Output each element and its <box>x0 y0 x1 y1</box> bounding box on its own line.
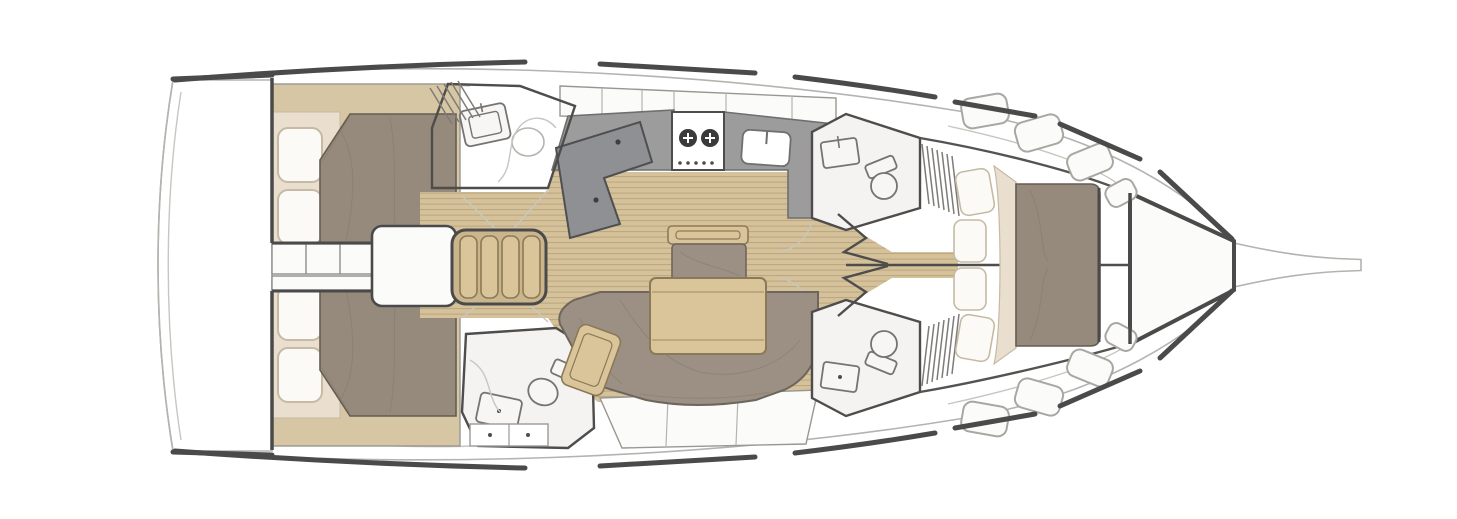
head-forward-port <box>812 114 920 230</box>
pillow <box>278 348 322 402</box>
pillow <box>278 286 322 340</box>
head-forward-starboard <box>812 300 920 416</box>
yacht-floor-plan-canvas <box>0 0 1457 519</box>
saloon-bench <box>668 226 748 282</box>
bowsprit <box>1234 243 1361 287</box>
corridor-step-panels <box>272 244 372 274</box>
corridor-to-aft <box>272 243 372 291</box>
corridor-lower-panel <box>272 276 372 290</box>
sink <box>820 362 859 393</box>
anchor-locker <box>1130 193 1234 344</box>
vanity-cabinet <box>470 424 548 446</box>
stove <box>672 112 724 170</box>
galley-sink <box>741 129 791 166</box>
shower-drain <box>512 128 544 156</box>
yacht-floor-plan <box>0 0 1457 519</box>
island-bed-duvet <box>1016 184 1100 346</box>
pillow <box>278 128 322 182</box>
pillow <box>278 190 322 244</box>
transom-deck-line <box>168 92 181 440</box>
engine-box <box>372 226 456 306</box>
companionway-steps <box>452 230 546 304</box>
saloon-table <box>650 278 766 354</box>
